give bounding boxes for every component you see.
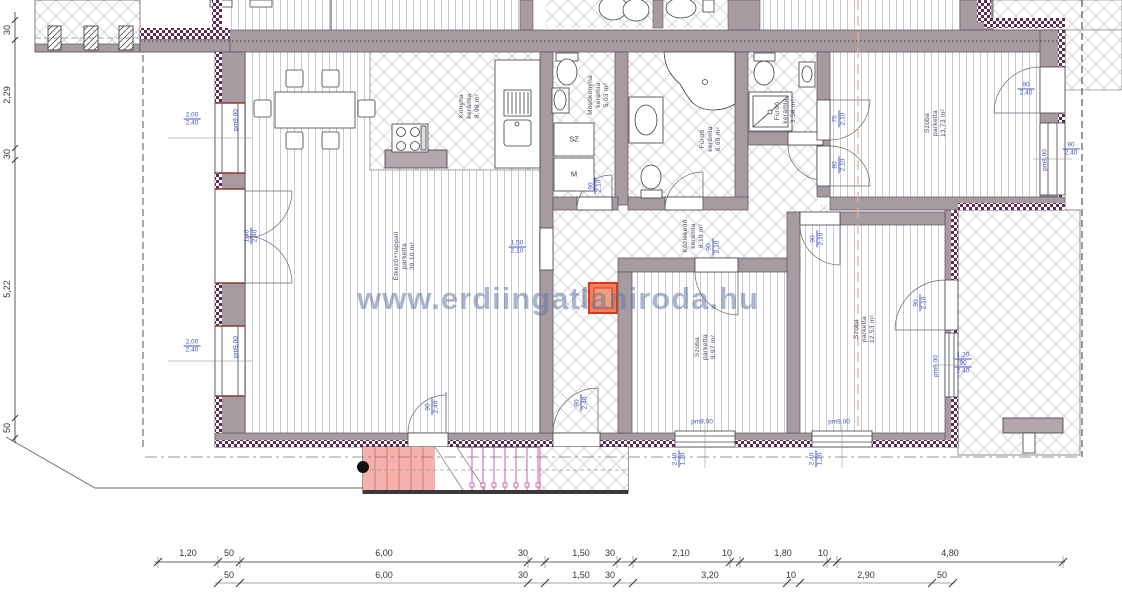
washbasin-icon xyxy=(552,88,569,113)
floor-plan-drawing xyxy=(0,0,1122,600)
floor-plan-page: www.erdiingatlaniroda.hu Étkező+nappali … xyxy=(0,0,1122,600)
dishwasher-icon xyxy=(504,90,531,116)
toilet-icon xyxy=(556,53,578,85)
bedroom2-floor xyxy=(800,225,945,433)
shower-icon xyxy=(749,92,792,131)
kitchen-sink-icon xyxy=(504,120,531,146)
chair xyxy=(358,100,375,117)
stove-icon xyxy=(392,124,428,152)
hallway-floor xyxy=(748,145,817,205)
window-left-1 xyxy=(168,103,252,173)
upper-floor-strip xyxy=(210,0,993,30)
bathtub-partial xyxy=(623,0,649,21)
opening-living-hall xyxy=(540,228,553,270)
vanity-sink-icon xyxy=(629,97,663,143)
window-left-2 xyxy=(168,326,252,396)
chair xyxy=(254,100,271,117)
bedroom1-floor xyxy=(632,272,787,433)
dining-table xyxy=(275,92,355,128)
window-bottom-2 xyxy=(812,425,872,468)
exterior-stairs xyxy=(357,447,628,494)
chimney-block xyxy=(589,283,617,313)
terrace-step xyxy=(1003,418,1063,433)
window-bottom-1 xyxy=(675,425,735,468)
dryer-box xyxy=(554,158,594,191)
toilet-icon xyxy=(666,0,696,18)
chair xyxy=(322,132,339,149)
washbasin-icon xyxy=(703,0,714,12)
chair xyxy=(250,0,272,7)
washbasin-icon xyxy=(799,62,815,87)
toilet-icon xyxy=(754,53,775,85)
terrace-post xyxy=(1023,433,1035,453)
stair-reference-dot xyxy=(357,461,369,473)
chair xyxy=(286,70,303,87)
toilet-icon xyxy=(641,165,662,198)
washing-machine-box xyxy=(554,123,594,156)
chair xyxy=(322,70,339,87)
chair xyxy=(286,132,303,149)
kitchen-counter-low xyxy=(385,150,447,168)
